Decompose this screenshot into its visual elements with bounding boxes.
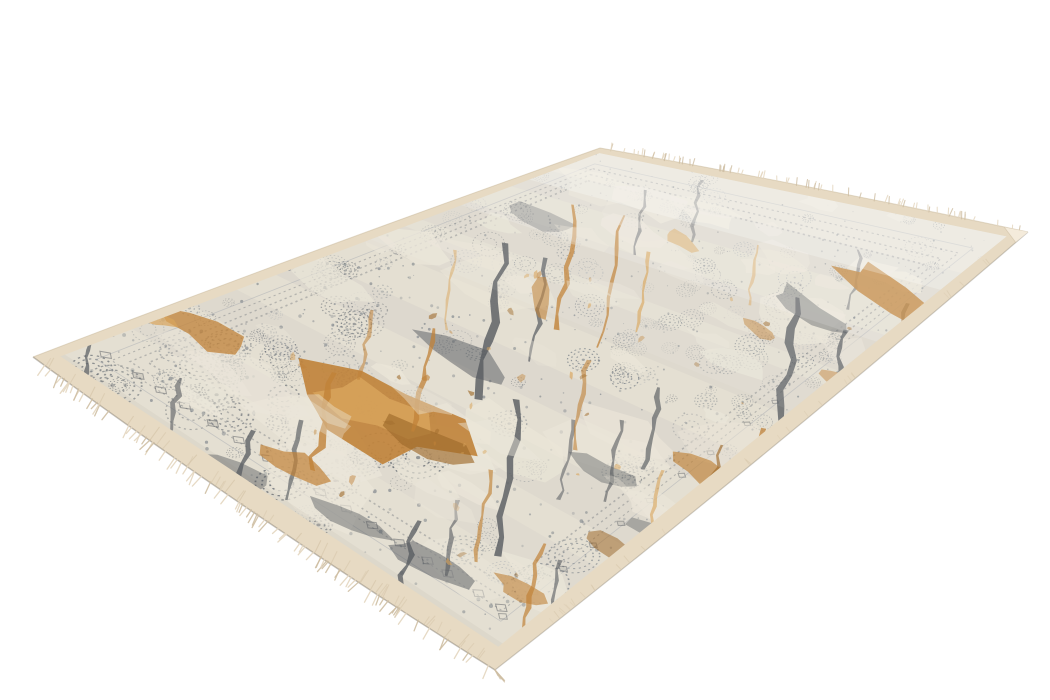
product-photo (0, 0, 1050, 700)
rug-illustration (0, 0, 1050, 700)
